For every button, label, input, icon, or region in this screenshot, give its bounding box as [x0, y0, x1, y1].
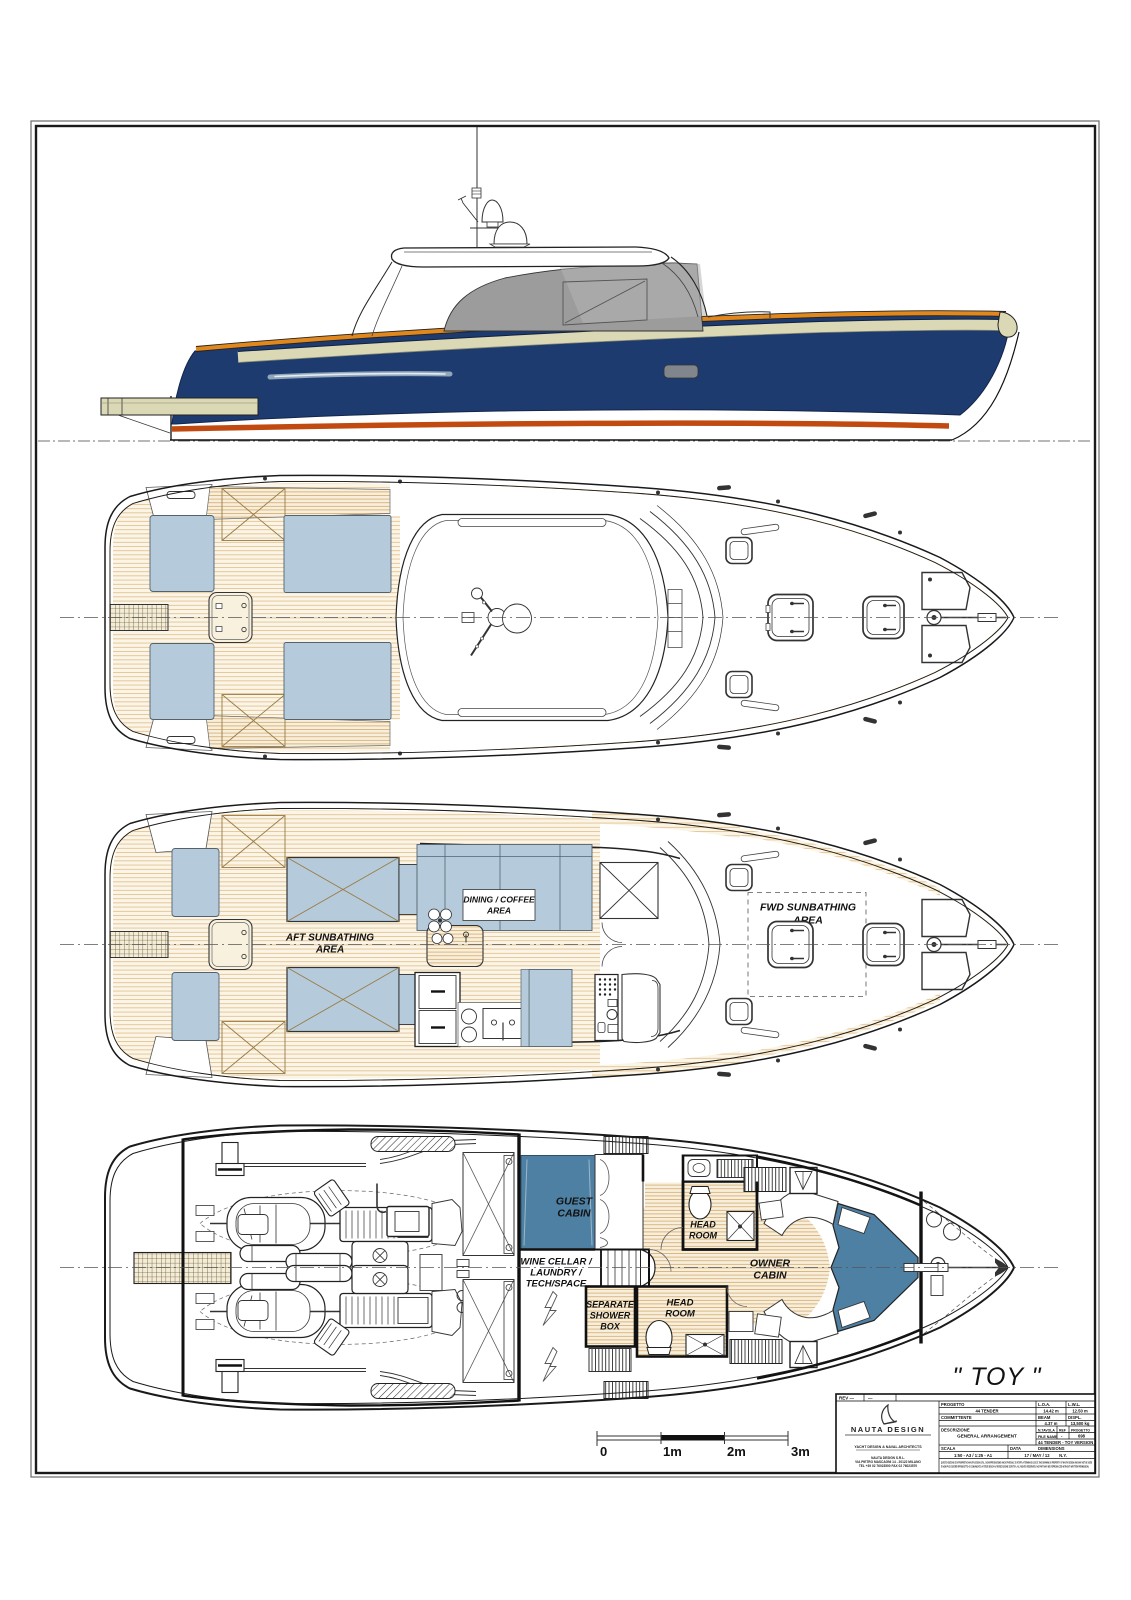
- svg-text:ROOM: ROOM: [689, 1231, 718, 1241]
- svg-text:SCALA: SCALA: [941, 1446, 955, 1451]
- svg-text:1:50 - A3 / 1:25 - A1: 1:50 - A3 / 1:25 - A1: [954, 1453, 993, 1458]
- svg-text:BOX: BOX: [600, 1322, 621, 1332]
- svg-text:13,500 kg: 13,500 kg: [1071, 1421, 1090, 1426]
- svg-text:CABIN: CABIN: [557, 1208, 591, 1220]
- svg-text:HEAD: HEAD: [667, 1298, 694, 1309]
- svg-text:E NON PUO ESSERE RIPRODOTTO O: E NON PUO ESSERE RIPRODOTTO O COMUNICATO…: [941, 1465, 1089, 1469]
- svg-text:DESCRIZIONE: DESCRIZIONE: [941, 1428, 970, 1433]
- svg-text:DIMENSIONS: DIMENSIONS: [1038, 1446, 1065, 1451]
- svg-text:" TOY ": " TOY ": [952, 1363, 1041, 1391]
- svg-text:DISPL.: DISPL.: [1068, 1415, 1082, 1420]
- svg-text:SEPARATE: SEPARATE: [586, 1300, 635, 1310]
- svg-text:TECH/SPACE: TECH/SPACE: [526, 1279, 587, 1290]
- svg-text:3m: 3m: [791, 1444, 810, 1459]
- svg-text:L.W.L.: L.W.L.: [1068, 1402, 1080, 1407]
- svg-text:TEL +39 02 76023500 FAX 02 760: TEL +39 02 76023500 FAX 02 76023570: [859, 1464, 918, 1468]
- svg-text:44 TENDER - TOY VERSION: 44 TENDER - TOY VERSION: [1038, 1440, 1093, 1445]
- svg-text:1m: 1m: [663, 1444, 682, 1459]
- svg-text:12.50 m: 12.50 m: [1072, 1409, 1088, 1414]
- svg-text:17 / MAY / 12: 17 / MAY / 12: [1024, 1453, 1050, 1458]
- svg-text:CABIN: CABIN: [753, 1270, 787, 1282]
- svg-text:ROOM: ROOM: [665, 1309, 696, 1320]
- svg-text:FILE NAME: FILE NAME: [1038, 1435, 1058, 1439]
- svg-text:REV —: REV —: [839, 1396, 855, 1401]
- svg-text:PROGETTO: PROGETTO: [1071, 1429, 1090, 1433]
- svg-text:14.42 m: 14.42 m: [1043, 1409, 1059, 1414]
- svg-text:N.Y.: N.Y.: [1059, 1453, 1067, 1458]
- svg-text:QUESTO DISEGNO E DI PROPRIETA: QUESTO DISEGNO E DI PROPRIETA DI NAUTA D…: [941, 1461, 1092, 1465]
- svg-text:0: 0: [600, 1444, 607, 1459]
- svg-text:HEAD: HEAD: [690, 1220, 716, 1230]
- svg-text:YACHT DESIGN & NAVAL ARCHITECT: YACHT DESIGN & NAVAL ARCHITECTS: [854, 1445, 922, 1449]
- svg-text:WINE CELLAR /: WINE CELLAR /: [520, 1257, 593, 1268]
- svg-text:4.37 m: 4.37 m: [1044, 1421, 1057, 1426]
- svg-text:2m: 2m: [727, 1444, 746, 1459]
- svg-text:DATA: DATA: [1010, 1446, 1021, 1451]
- svg-text:GUEST: GUEST: [556, 1196, 594, 1208]
- svg-text:BEAM: BEAM: [1038, 1415, 1051, 1420]
- svg-text:PROGETTO: PROGETTO: [941, 1402, 965, 1407]
- svg-text:AREA: AREA: [315, 945, 344, 956]
- svg-text:FWD SUNBATHING: FWD SUNBATHING: [760, 902, 856, 914]
- svg-text:44 TENDER: 44 TENDER: [975, 1409, 998, 1414]
- svg-text:GENERAL ARRANGEMENT: GENERAL ARRANGEMENT: [957, 1434, 1017, 1439]
- svg-text:COMMITTENTE: COMMITTENTE: [941, 1415, 972, 1420]
- svg-text:LAUNDRY /: LAUNDRY /: [530, 1268, 583, 1279]
- svg-text:AFT SUNBATHING: AFT SUNBATHING: [285, 933, 374, 944]
- svg-text:REF: REF: [1059, 1429, 1066, 1433]
- svg-text:698: 698: [1078, 1434, 1086, 1439]
- svg-text:AREA: AREA: [486, 906, 511, 916]
- svg-text:DINING / COFFEE: DINING / COFFEE: [463, 895, 535, 905]
- svg-text:N.TAVOLA: N.TAVOLA: [1038, 1429, 1055, 1433]
- svg-text:SHOWER: SHOWER: [590, 1311, 631, 1321]
- svg-text:NAUTA DESIGN: NAUTA DESIGN: [851, 1425, 925, 1434]
- svg-text:—: —: [868, 1396, 873, 1401]
- svg-text:L.O.A.: L.O.A.: [1038, 1402, 1050, 1407]
